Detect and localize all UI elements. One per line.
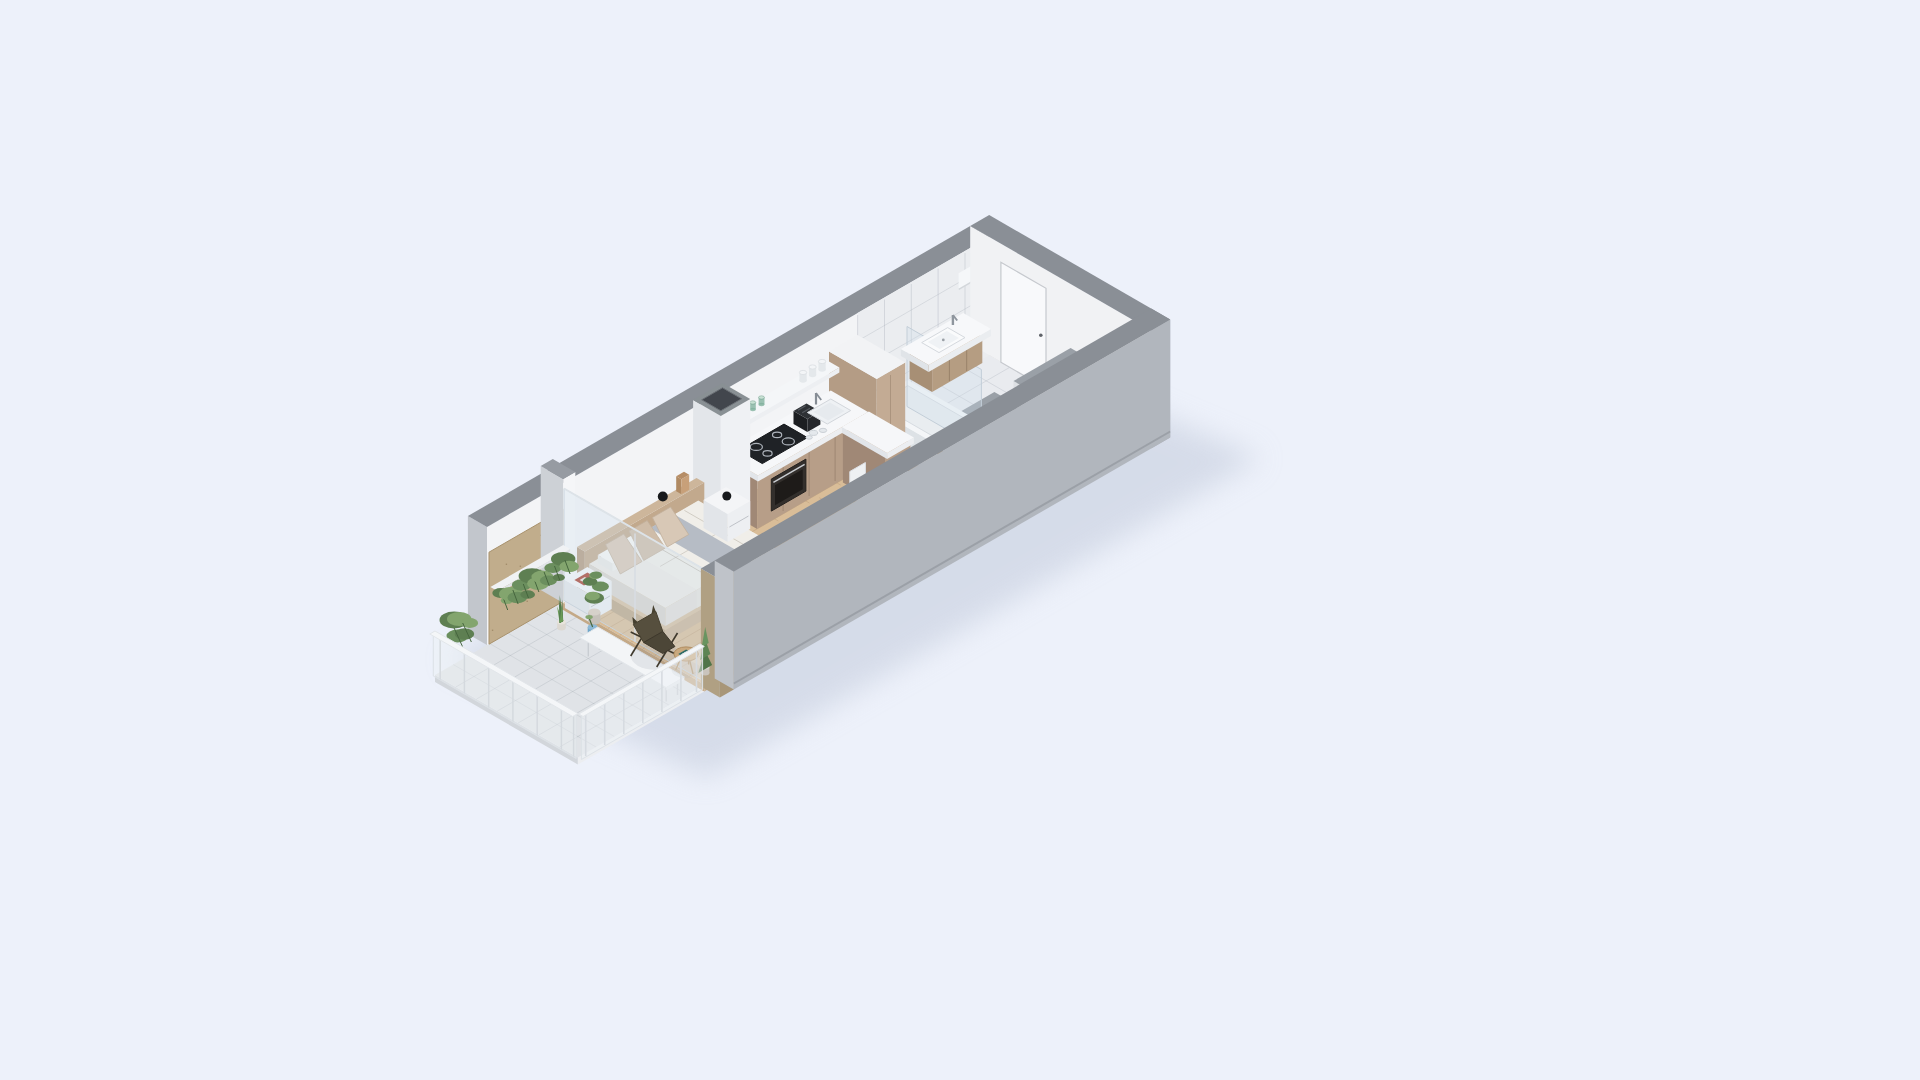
floorplan-stage bbox=[0, 0, 1920, 1080]
floorplan-svg bbox=[0, 0, 1920, 1080]
